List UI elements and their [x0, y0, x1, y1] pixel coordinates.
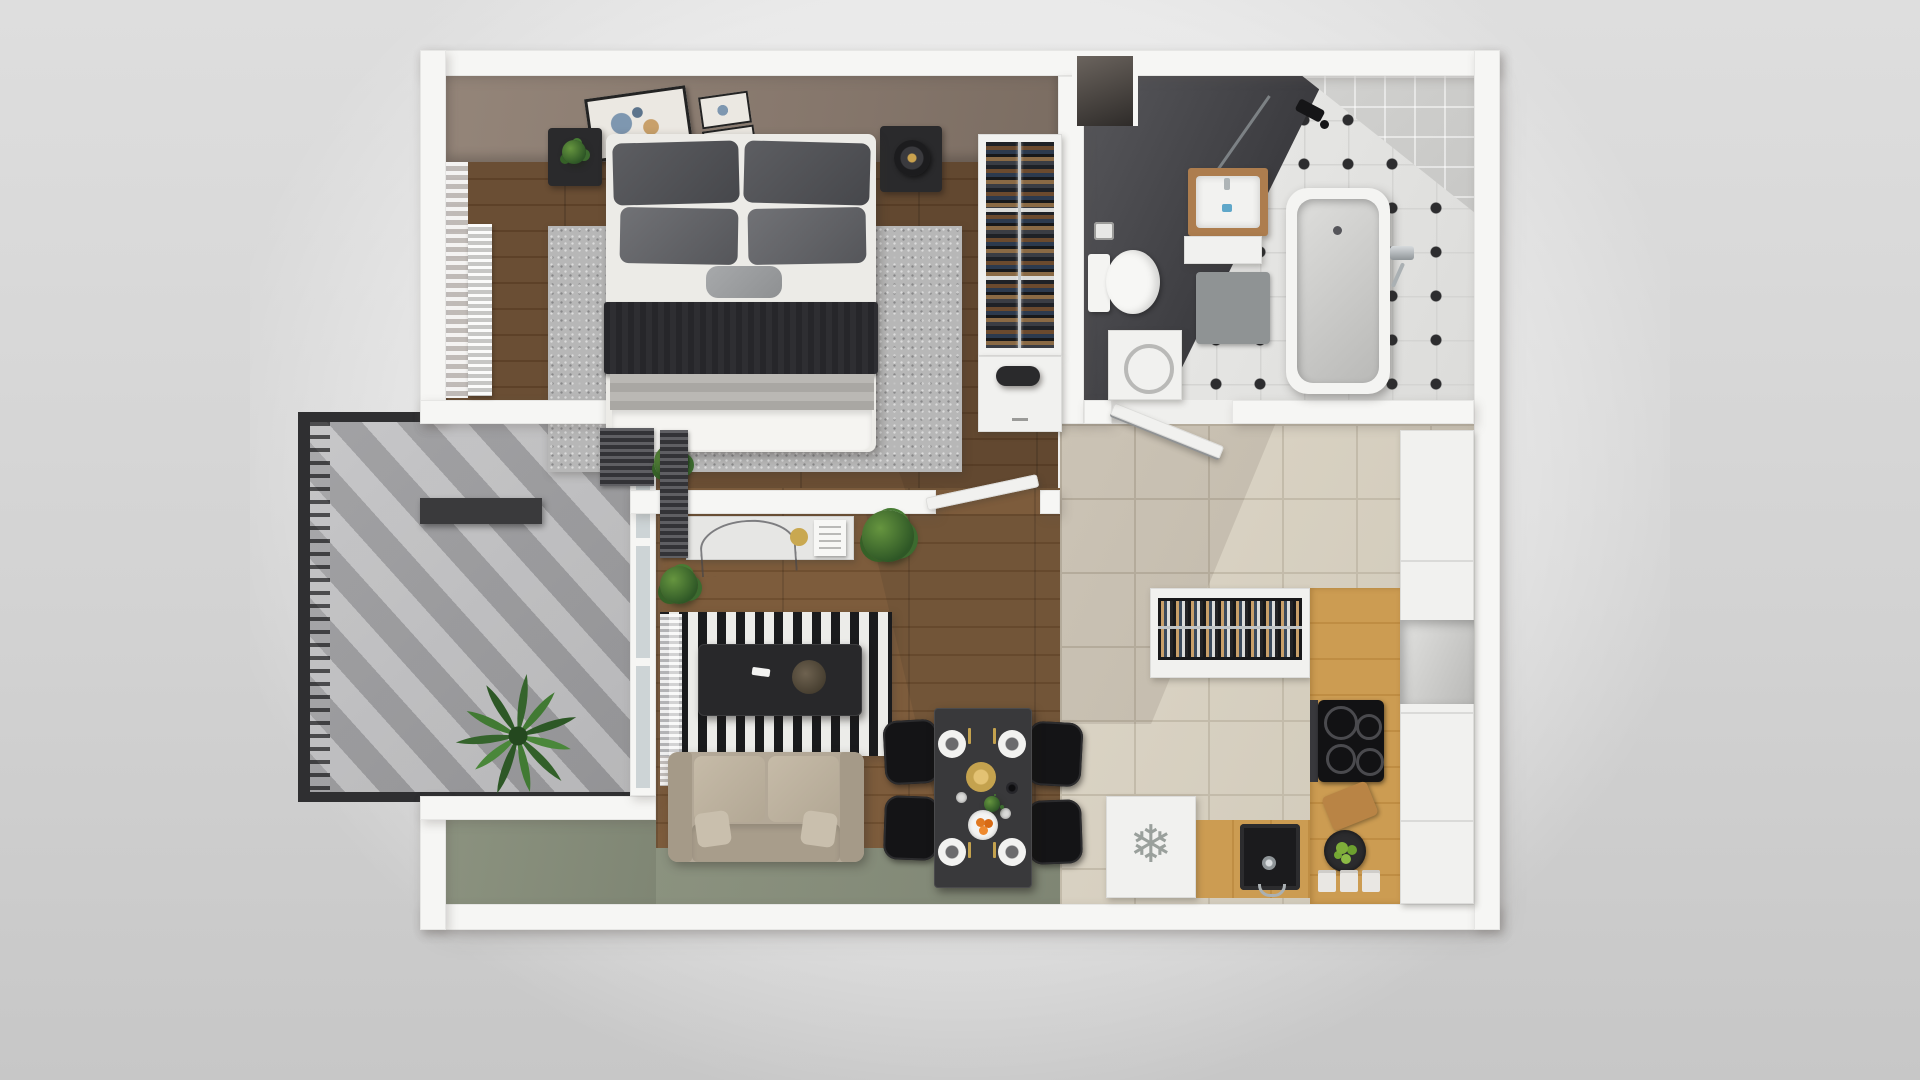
dining-chair-1	[882, 719, 939, 786]
cabinet-seam-2	[1400, 712, 1474, 714]
sofa-seat-2	[768, 756, 839, 822]
wall-bath-south-west-stub	[1084, 400, 1112, 424]
storage-jar-1	[1318, 870, 1336, 892]
glass-1	[956, 792, 967, 803]
oven-strip	[1310, 700, 1318, 782]
cooktop-ring-1	[1324, 706, 1358, 740]
cooktop-ring-2	[1356, 714, 1382, 740]
desk-gold-plate	[790, 528, 808, 546]
plate-drawer	[1158, 598, 1302, 660]
freezer-snowflake-icon: ❄	[1106, 810, 1196, 880]
kitchen-faucet	[1262, 856, 1276, 870]
entry-door-niche	[1072, 56, 1138, 126]
cutlery-2	[993, 728, 996, 744]
kitchen-open-niche	[1400, 620, 1474, 704]
magazine-lines	[819, 526, 841, 550]
wine-bottle	[1006, 782, 1018, 794]
shower-head-dot	[1320, 120, 1329, 129]
sofa-pillow-right	[800, 810, 838, 848]
living-floor-plant	[862, 510, 914, 562]
nightstand-plant	[562, 140, 586, 164]
storage-jar-2	[1340, 870, 1358, 892]
bedroom-white-radiator	[468, 224, 492, 396]
toilet-paper-holder	[1094, 222, 1114, 240]
tub-mixer	[1390, 246, 1414, 260]
plate-4	[998, 838, 1026, 866]
balcony-railing-left	[298, 412, 310, 802]
wall-bottom	[420, 904, 1500, 930]
washing-machine-drum	[1124, 344, 1174, 394]
cooktop-ring-4	[1356, 748, 1384, 776]
sofa-pillow-left	[694, 810, 732, 848]
bed-pillow-1	[612, 140, 740, 205]
wall-left-upper	[420, 50, 446, 424]
green-carpet-left	[446, 820, 656, 904]
coffee-table	[698, 644, 862, 716]
plate-drawer-rail	[1158, 626, 1302, 629]
palm-plant	[438, 668, 598, 804]
dining-chair-2	[883, 795, 939, 861]
wall-balcony-south	[420, 796, 656, 820]
bedroom-sheer-curtain	[446, 162, 468, 398]
wardrobe-rail	[1018, 142, 1021, 348]
bed-pillow-small	[706, 266, 782, 298]
plate-3	[938, 838, 966, 866]
wall-right	[1474, 50, 1500, 930]
living-dark-radiator	[660, 430, 688, 558]
bed-pillow-4	[748, 207, 867, 265]
balcony-railing-rungs	[310, 422, 330, 792]
cabinet-seam-1	[1400, 560, 1474, 562]
cabinet-seam-3	[1400, 820, 1474, 822]
wardrobe-cabinet-handle	[1012, 418, 1028, 421]
sofa-armrest-left	[668, 752, 692, 862]
sink-soap-blue	[1222, 204, 1232, 212]
plate-2	[998, 730, 1026, 758]
living-window-plant	[660, 566, 698, 604]
bath-mat	[1196, 272, 1270, 344]
bed-throw-blanket	[604, 302, 878, 374]
cooktop-ring-3	[1326, 744, 1356, 774]
sink-faucet	[1224, 178, 1230, 190]
bathtub-drain	[1333, 226, 1342, 235]
apples	[1336, 842, 1348, 854]
glazed-wall-pane-3	[636, 666, 650, 788]
plate-1	[938, 730, 966, 758]
bed-light-blanket	[610, 374, 874, 410]
oranges	[976, 818, 985, 827]
dining-chair-4	[1027, 799, 1083, 865]
cutlery-4	[993, 842, 996, 858]
decor-tray	[996, 366, 1040, 386]
gold-charger	[966, 762, 996, 792]
table-lamp	[894, 140, 930, 176]
glass-2	[1000, 808, 1011, 819]
cutlery-1	[968, 728, 971, 744]
storage-jar-3	[1362, 870, 1380, 892]
bed-pillow-3	[620, 207, 739, 265]
wall-bath-south-east	[1232, 400, 1474, 424]
cutlery-3	[968, 842, 971, 858]
floor-plan-render: ❄	[0, 0, 1920, 1080]
decor-bowl	[792, 660, 826, 694]
wall-opening-stub	[1040, 490, 1060, 514]
wall-top	[420, 50, 1500, 76]
glazed-wall-pane-2	[636, 546, 650, 658]
balcony-privacy-screen	[420, 498, 542, 524]
bed-pillow-2	[743, 140, 871, 205]
sofa-armrest-right	[840, 752, 864, 862]
toilet-bowl	[1106, 250, 1160, 314]
bedroom-dark-radiator	[600, 428, 654, 486]
dining-chair-3	[1026, 721, 1083, 788]
vanity-cabinet	[1184, 236, 1262, 264]
